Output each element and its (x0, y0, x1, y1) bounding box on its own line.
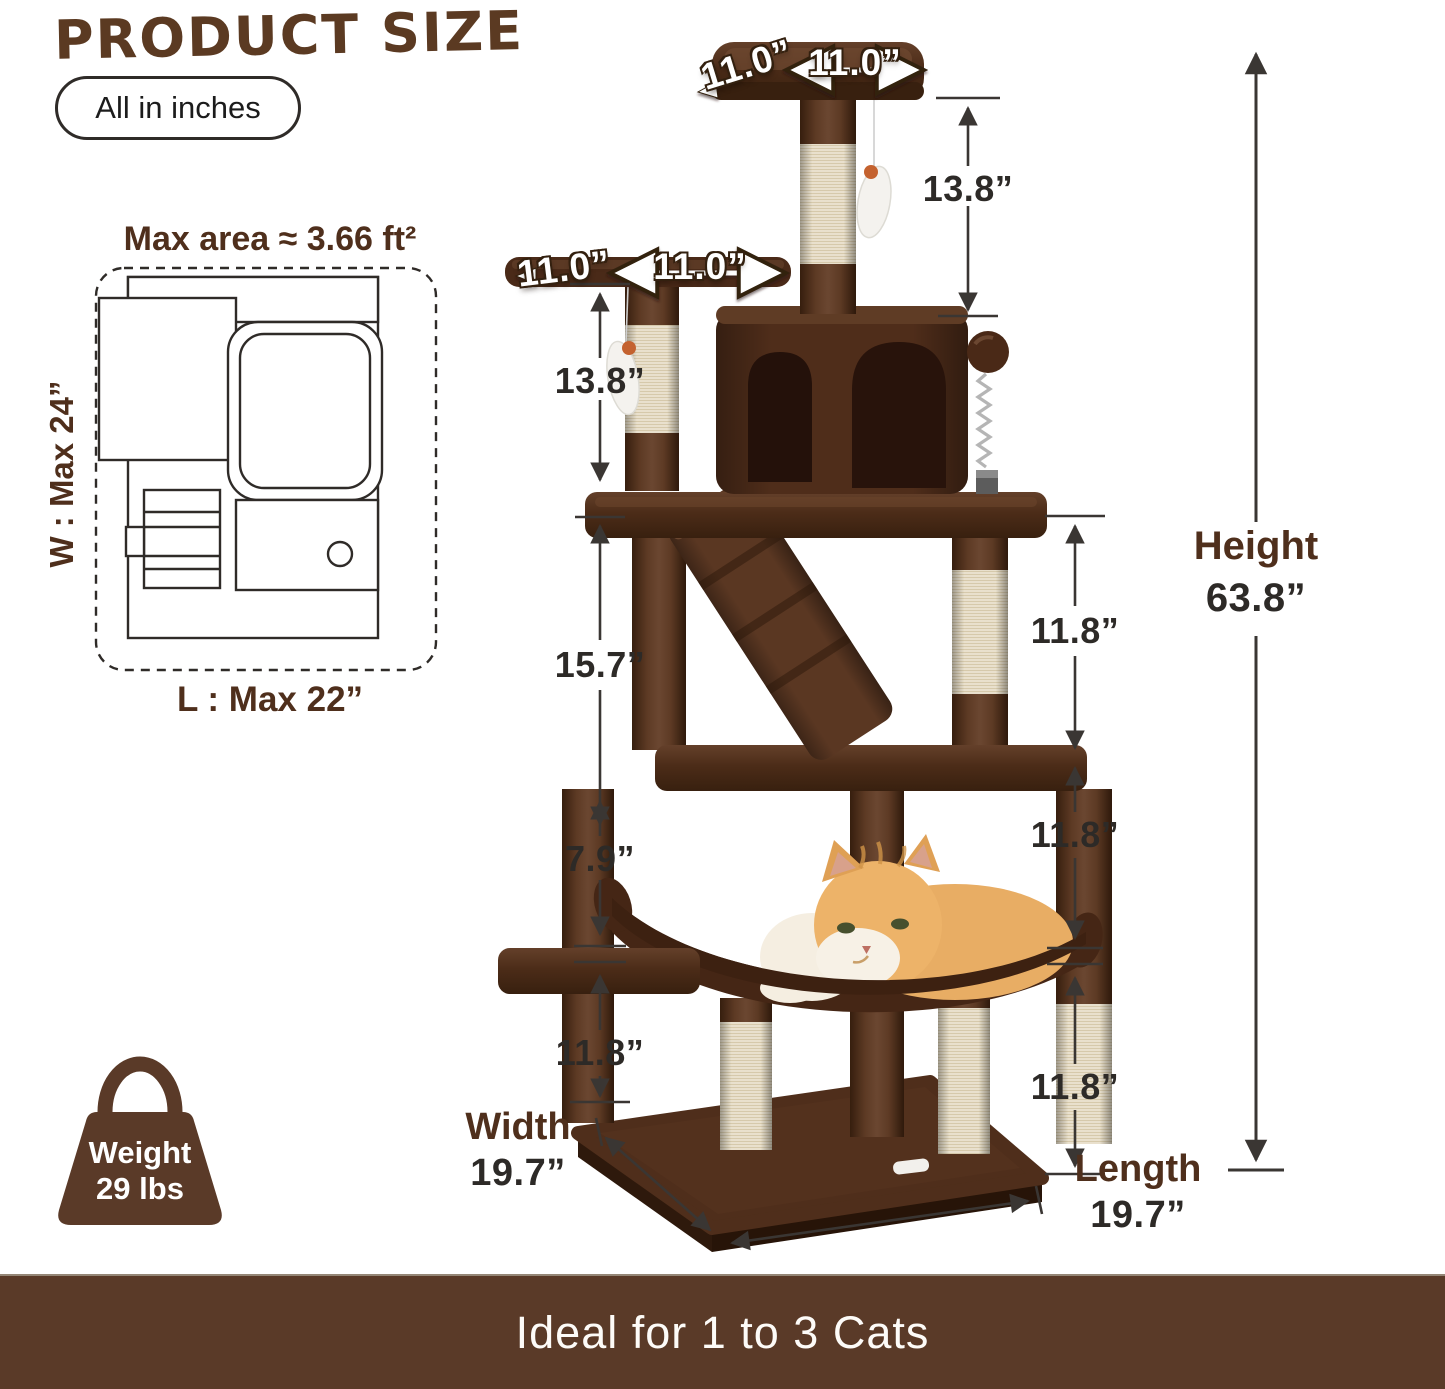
condo-house (716, 306, 968, 494)
dim-second-post: 13.8” (530, 360, 670, 402)
spring-ball-toy (967, 331, 1009, 494)
page-title: PRODUCT SIZE (53, 0, 524, 72)
weight-value: 29 lbs (60, 1171, 220, 1207)
scratching-post-right (938, 984, 990, 1154)
units-pill: All in inches (55, 76, 301, 140)
footprint-width-label: W : Max 24” (43, 354, 81, 594)
length-value: 19.7” (1048, 1194, 1228, 1237)
product-size-infographic: Weight 29 lbs PRODUCT SIZE All in inches… (0, 0, 1445, 1389)
max-area-label: Max area ≈ 3.66 ft² (75, 220, 465, 259)
footer-text: Ideal for 1 to 3 Cats (516, 1307, 930, 1359)
height-label: Height (1166, 524, 1346, 569)
height-value: 63.8” (1166, 576, 1346, 621)
post-mid-left (632, 526, 686, 750)
mouse-toy-right (852, 100, 896, 240)
dim-upper-post: 13.8” (898, 168, 1038, 210)
post-top (800, 98, 856, 314)
units-note: All in inches (95, 90, 260, 126)
floorplan-rounded-bed (228, 322, 382, 500)
dim-lower-right-post: 11.8” (1005, 1066, 1145, 1108)
dim-second-platform-right: 11.0” (650, 246, 750, 288)
dim-middle-right-post: 11.8” (1005, 814, 1145, 856)
dim-lower-left-post: 11.8” (530, 1032, 670, 1074)
weight-label: Weight (60, 1135, 220, 1171)
dim-top-platform-right: 11.0” (800, 42, 910, 84)
dim-hammock-gap: 7.9” (535, 838, 665, 880)
bag-handle-icon (105, 1064, 175, 1112)
length-label: Length (1048, 1148, 1228, 1191)
footprint-length-label: L : Max 22” (150, 680, 390, 720)
footer-banner: Ideal for 1 to 3 Cats (0, 1274, 1445, 1389)
floorplan-condo-top (236, 500, 378, 590)
condo-arch-left (748, 352, 812, 482)
dim-middle-section: 15.7” (530, 644, 670, 686)
floorplan-hole (328, 542, 352, 566)
floorplan-left-platform (99, 298, 236, 460)
width-value: 19.7” (448, 1152, 588, 1195)
dim-upper-right-post: 11.8” (1005, 610, 1145, 652)
platform-upper (585, 492, 1047, 538)
scratching-post-left (720, 998, 772, 1150)
condo-arch-right (852, 342, 946, 488)
post-mid-right-sisal (952, 526, 1008, 750)
width-label: Width (448, 1106, 588, 1149)
floorplan-diagram (96, 268, 436, 670)
platform-middle (655, 745, 1087, 791)
